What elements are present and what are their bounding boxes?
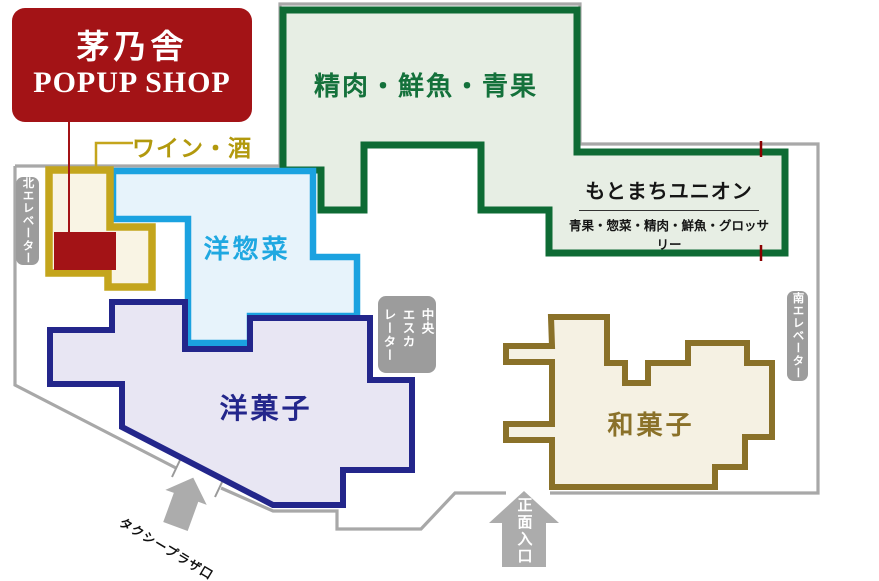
taxi-entrance-arrow-icon [155,470,214,534]
south-elevator-label: 南エレベーター [787,291,808,381]
popup-shop-title: 茅乃舎 [77,30,188,66]
popup-shop-subtitle: POPUP SHOP [33,66,231,100]
central-escalator-text: 中央 エスカ レーター [379,308,436,362]
motomachi-union-block: もとまちユニオン 青果・惣菜・精肉・鮮魚・グロッサリー [564,175,774,253]
wine-sake-label: ワイン・酒 [132,129,252,163]
south-elevator-text: 南エレベーター [790,292,806,380]
popup-shop-location [54,232,116,270]
motomachi-union-name: もとまちユニオン [579,175,759,211]
main-entrance-label: 正面入口 [514,497,535,565]
meat-fish-produce-label: 精肉・鮮魚・青果 [314,66,538,103]
western-sweets-label: 洋菓子 [219,387,312,427]
wine-connector-line [96,143,133,167]
central-escalator-label: 中央 エスカ レーター [378,296,436,373]
north-elevator-text: 北エレベーター [20,177,36,265]
western-deli-label: 洋惣菜 [203,229,290,266]
area-japanese-sweets [506,317,772,487]
popup-shop-callout: 茅乃舎 POPUP SHOP [12,8,252,122]
motomachi-union-categories: 青果・惣菜・精肉・鮮魚・グロッサリー [564,215,774,253]
north-elevator-label: 北エレベーター [16,177,39,265]
floor-map: 茅乃舎 POPUP SHOP ワイン・酒 精肉・鮮魚・青果 もとまちユニオン 青… [0,0,879,581]
japanese-sweets-label: 和菓子 [607,405,694,442]
